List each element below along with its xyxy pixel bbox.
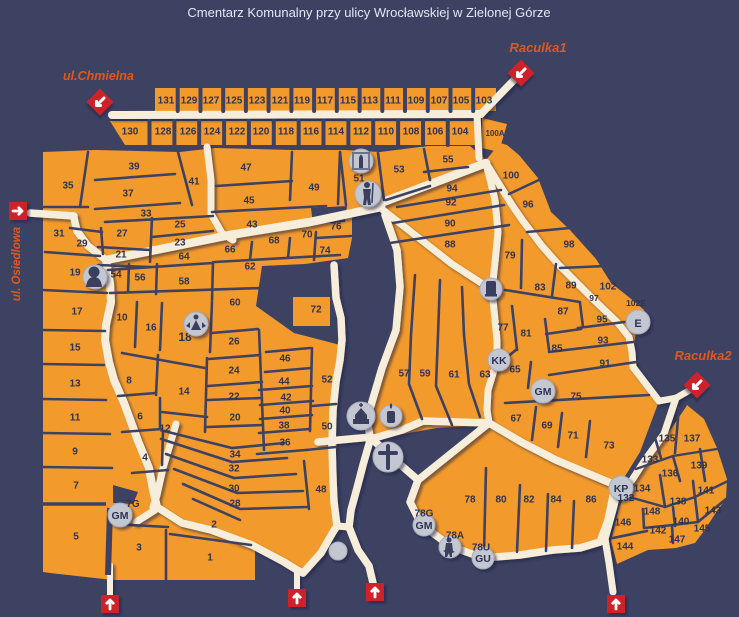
svg-text:19: 19 [69,268,81,279]
svg-text:135: 135 [659,434,676,445]
svg-text:130: 130 [122,127,139,138]
svg-text:128: 128 [155,127,172,138]
svg-text:79: 79 [504,251,516,262]
svg-text:83: 83 [534,283,546,294]
svg-text:126: 126 [180,127,197,138]
svg-text:21: 21 [115,250,127,261]
svg-text:Cmentarz Komunalny przy ulicy: Cmentarz Komunalny przy ulicy Wrocławski… [187,5,550,20]
svg-text:108: 108 [403,127,420,138]
svg-text:65: 65 [509,365,521,376]
svg-text:63: 63 [479,370,491,381]
svg-text:55: 55 [442,155,454,166]
svg-text:1: 1 [207,553,213,564]
svg-text:36: 36 [279,438,291,449]
svg-text:132: 132 [618,493,635,504]
svg-text:104: 104 [452,127,469,138]
svg-text:43: 43 [246,220,258,231]
svg-text:GM: GM [416,520,433,532]
svg-text:133: 133 [642,455,659,466]
svg-text:100A: 100A [485,129,504,138]
svg-text:40: 40 [279,406,291,417]
svg-text:73: 73 [603,441,615,452]
svg-text:124: 124 [204,127,221,138]
svg-text:85: 85 [551,344,563,355]
svg-text:138: 138 [670,497,687,508]
svg-text:69: 69 [541,421,553,432]
svg-text:103: 103 [476,96,493,107]
svg-text:11: 11 [70,413,81,424]
svg-text:146: 146 [615,518,632,529]
svg-text:123: 123 [249,96,266,107]
svg-text:58: 58 [178,277,190,288]
svg-text:148: 148 [644,507,661,518]
svg-text:32: 32 [228,464,240,475]
svg-text:66: 66 [224,245,236,256]
svg-text:38: 38 [278,421,290,432]
svg-text:84: 84 [550,495,562,506]
svg-text:53: 53 [393,165,405,176]
svg-text:57: 57 [398,369,410,380]
svg-text:76: 76 [330,222,342,233]
svg-text:131: 131 [158,96,175,107]
svg-text:ul. Osiedlowa: ul. Osiedlowa [11,226,23,301]
svg-text:42: 42 [280,393,292,404]
svg-text:72: 72 [310,305,322,316]
svg-text:78: 78 [464,495,476,506]
svg-text:105: 105 [453,96,470,107]
svg-text:39: 39 [128,162,140,173]
svg-text:111: 111 [385,96,401,107]
svg-text:97: 97 [589,293,599,303]
svg-text:119: 119 [294,96,311,107]
svg-text:136: 136 [662,469,679,480]
svg-text:16: 16 [145,323,157,334]
svg-text:102E: 102E [626,298,646,308]
svg-text:144: 144 [617,542,634,553]
svg-text:GM: GM [112,510,129,522]
svg-text:87: 87 [557,307,569,318]
svg-text:90: 90 [444,219,456,230]
svg-text:107: 107 [431,96,448,107]
svg-text:56: 56 [134,273,146,284]
svg-text:142: 142 [650,526,667,537]
svg-text:74: 74 [319,246,331,257]
svg-text:77: 77 [497,323,509,334]
svg-text:106: 106 [427,127,444,138]
svg-text:98: 98 [563,240,575,251]
svg-text:64: 64 [178,252,190,263]
svg-text:125: 125 [226,96,243,107]
svg-text:25: 25 [174,220,186,231]
svg-text:118: 118 [278,127,295,138]
svg-text:5: 5 [73,532,79,543]
svg-text:93: 93 [597,336,609,347]
svg-text:33: 33 [140,209,152,220]
svg-text:8: 8 [126,376,132,387]
svg-text:3: 3 [136,543,142,554]
svg-text:81: 81 [520,329,532,340]
svg-text:129: 129 [181,96,198,107]
svg-text:Raculka1: Raculka1 [509,40,566,55]
svg-text:112: 112 [353,127,370,138]
svg-text:41: 41 [188,177,200,188]
svg-text:88: 88 [444,240,456,251]
svg-text:67: 67 [510,414,522,425]
svg-text:110: 110 [378,127,395,138]
svg-text:140: 140 [673,517,690,528]
svg-text:92: 92 [445,198,457,209]
svg-text:GU: GU [475,553,491,565]
svg-text:102: 102 [600,282,617,293]
svg-text:145: 145 [694,524,711,535]
svg-text:134: 134 [634,484,651,495]
svg-text:KK: KK [491,355,507,367]
svg-text:60: 60 [229,298,241,309]
svg-text:4: 4 [142,453,148,464]
svg-text:137: 137 [684,434,701,445]
svg-text:22: 22 [228,392,240,403]
svg-text:7G: 7G [126,499,140,510]
svg-text:45: 45 [243,196,255,207]
svg-text:46: 46 [279,354,291,365]
svg-text:78U: 78U [472,543,490,554]
svg-text:14: 14 [178,387,190,398]
svg-text:50: 50 [321,422,333,433]
svg-text:23: 23 [174,238,186,249]
svg-text:116: 116 [303,127,320,138]
svg-text:27: 27 [116,229,128,240]
svg-text:2: 2 [211,520,217,531]
svg-text:94: 94 [446,184,458,195]
svg-text:143: 143 [705,506,722,517]
svg-text:13: 13 [69,379,81,390]
svg-text:20: 20 [229,413,241,424]
svg-text:59: 59 [419,369,431,380]
svg-text:62: 62 [244,262,256,273]
svg-text:91: 91 [599,359,611,370]
svg-text:80: 80 [495,495,507,506]
svg-text:7: 7 [73,481,79,492]
svg-text:75: 75 [570,392,582,403]
svg-text:GM: GM [535,386,552,398]
svg-text:52: 52 [321,375,333,386]
svg-text:30: 30 [228,484,240,495]
svg-text:24: 24 [228,366,240,377]
svg-text:35: 35 [62,181,74,192]
svg-text:100: 100 [503,171,520,182]
svg-text:49: 49 [308,183,320,194]
svg-text:89: 89 [565,281,577,292]
svg-text:86: 86 [585,495,597,506]
svg-text:82: 82 [523,495,535,506]
svg-text:115: 115 [340,96,357,107]
svg-text:109: 109 [408,96,425,107]
svg-text:117: 117 [317,96,334,107]
svg-text:96: 96 [522,200,534,211]
svg-text:17: 17 [71,307,83,318]
svg-text:139: 139 [691,461,708,472]
svg-text:121: 121 [272,96,289,107]
svg-text:44: 44 [278,377,290,388]
svg-text:34: 34 [229,450,241,461]
svg-text:37: 37 [122,189,134,200]
svg-text:26: 26 [228,337,240,348]
svg-text:113: 113 [362,96,379,107]
svg-text:95: 95 [596,315,608,326]
svg-text:29: 29 [76,239,88,250]
svg-text:114: 114 [328,127,345,138]
svg-text:15: 15 [69,343,81,354]
svg-text:47: 47 [240,163,252,174]
svg-text:70: 70 [301,230,313,241]
svg-text:6: 6 [137,412,143,423]
svg-text:54: 54 [110,270,122,281]
svg-text:122: 122 [229,127,246,138]
svg-text:127: 127 [203,96,220,107]
svg-text:78A: 78A [446,531,464,542]
svg-text:Raculka2: Raculka2 [674,348,732,363]
svg-text:68: 68 [268,236,280,247]
svg-text:10: 10 [116,313,128,324]
svg-text:48: 48 [315,485,327,496]
svg-text:ul.Chmielna: ul.Chmielna [63,69,134,83]
svg-text:9: 9 [72,447,78,458]
svg-text:120: 120 [253,127,270,138]
svg-text:61: 61 [448,370,460,381]
svg-text:31: 31 [53,229,65,240]
svg-text:E: E [634,318,641,330]
svg-text:71: 71 [567,431,579,442]
svg-text:78G: 78G [415,509,434,520]
svg-text:141: 141 [698,486,715,497]
svg-text:28: 28 [229,499,241,510]
svg-text:12: 12 [159,424,171,435]
svg-text:147: 147 [669,535,686,546]
